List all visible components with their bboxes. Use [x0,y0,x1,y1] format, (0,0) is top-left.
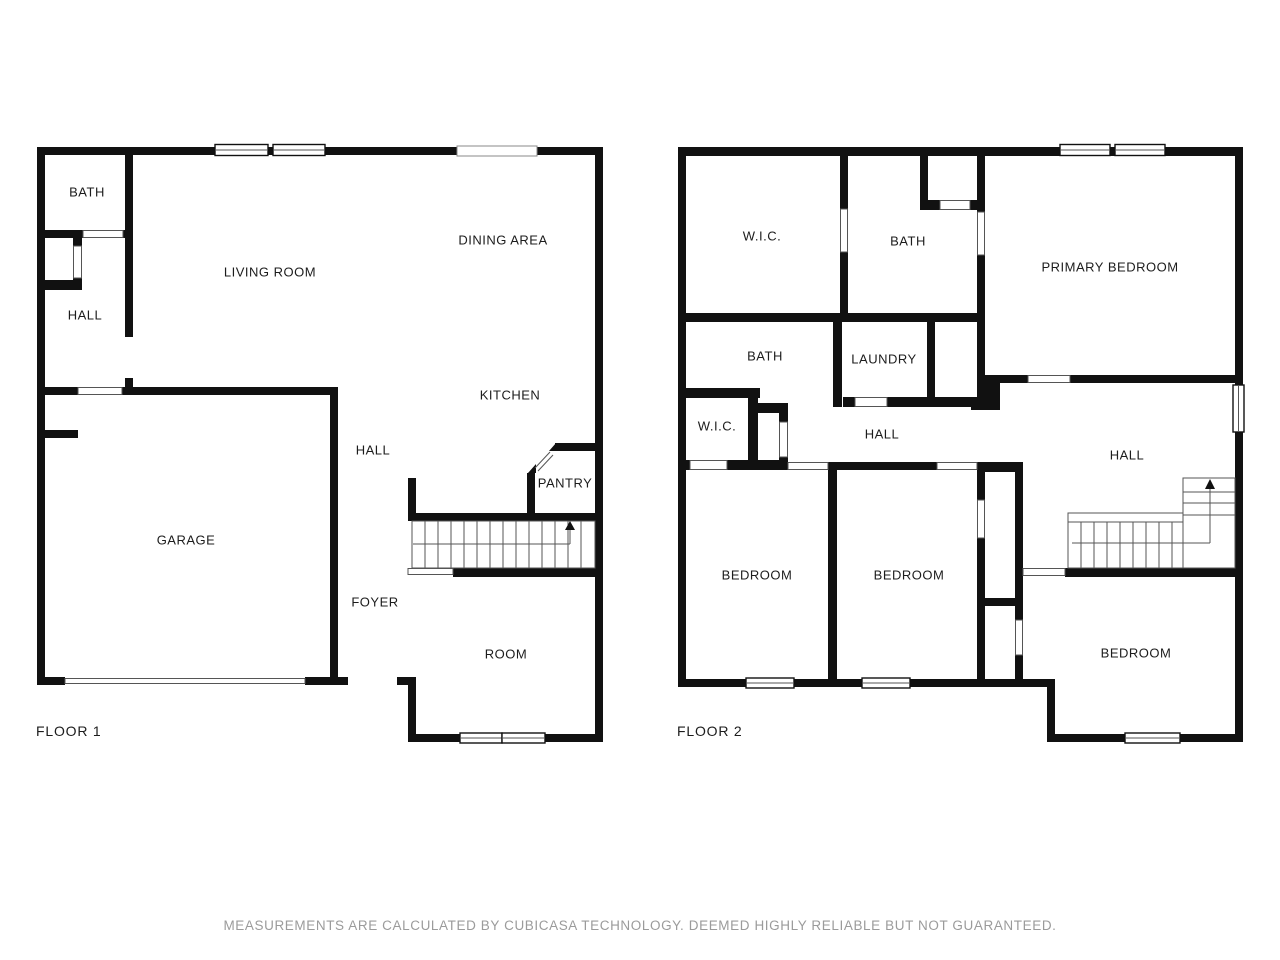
room-label-primary-bedroom: PRIMARY BEDROOM [1041,260,1178,275]
room-label-living-room: LIVING ROOM [224,265,316,280]
room-label-bedroom-2: BEDROOM [874,568,945,583]
room-label-laundry: LAUNDRY [851,352,916,367]
room-label-bedroom-1: BEDROOM [722,568,793,583]
room-label-bath-primary: BATH [890,234,926,249]
room-label-wic-primary: W.I.C. [743,229,781,244]
floor1-stairs [412,521,595,568]
floor1-title: FLOOR 1 [36,723,102,739]
room-label-room: ROOM [485,647,527,662]
floor2-stairs [1068,478,1235,568]
room-label-bath-f2: BATH [747,349,783,364]
room-label-hall-f2-east: HALL [1110,448,1145,463]
room-label-hall-f1-center: HALL [356,443,391,458]
room-label-kitchen: KITCHEN [480,388,541,403]
room-label-pantry: PANTRY [538,476,593,491]
disclaimer-text: MEASUREMENTS ARE CALCULATED BY CUBICASA … [0,918,1280,933]
room-label-wic-f2: W.I.C. [698,419,736,434]
floor2-title: FLOOR 2 [677,723,743,739]
room-label-hall-f1-west: HALL [68,308,103,323]
room-label-foyer: FOYER [351,595,398,610]
stairs-up-arrow-icon [565,521,575,530]
room-label-bedroom-3: BEDROOM [1101,646,1172,661]
room-label-bath-f1: BATH [69,185,105,200]
floor1-pantry-door [528,443,556,473]
stairs-up-arrow-icon [1205,479,1215,489]
room-label-garage: GARAGE [157,533,216,548]
room-label-hall-f2-west: HALL [865,427,900,442]
floor1-door-openings [65,231,453,684]
floorplan-page: { "footer": { "disclaimer": "MEASUREMENT… [0,0,1280,960]
room-label-dining-area: DINING AREA [458,233,547,248]
